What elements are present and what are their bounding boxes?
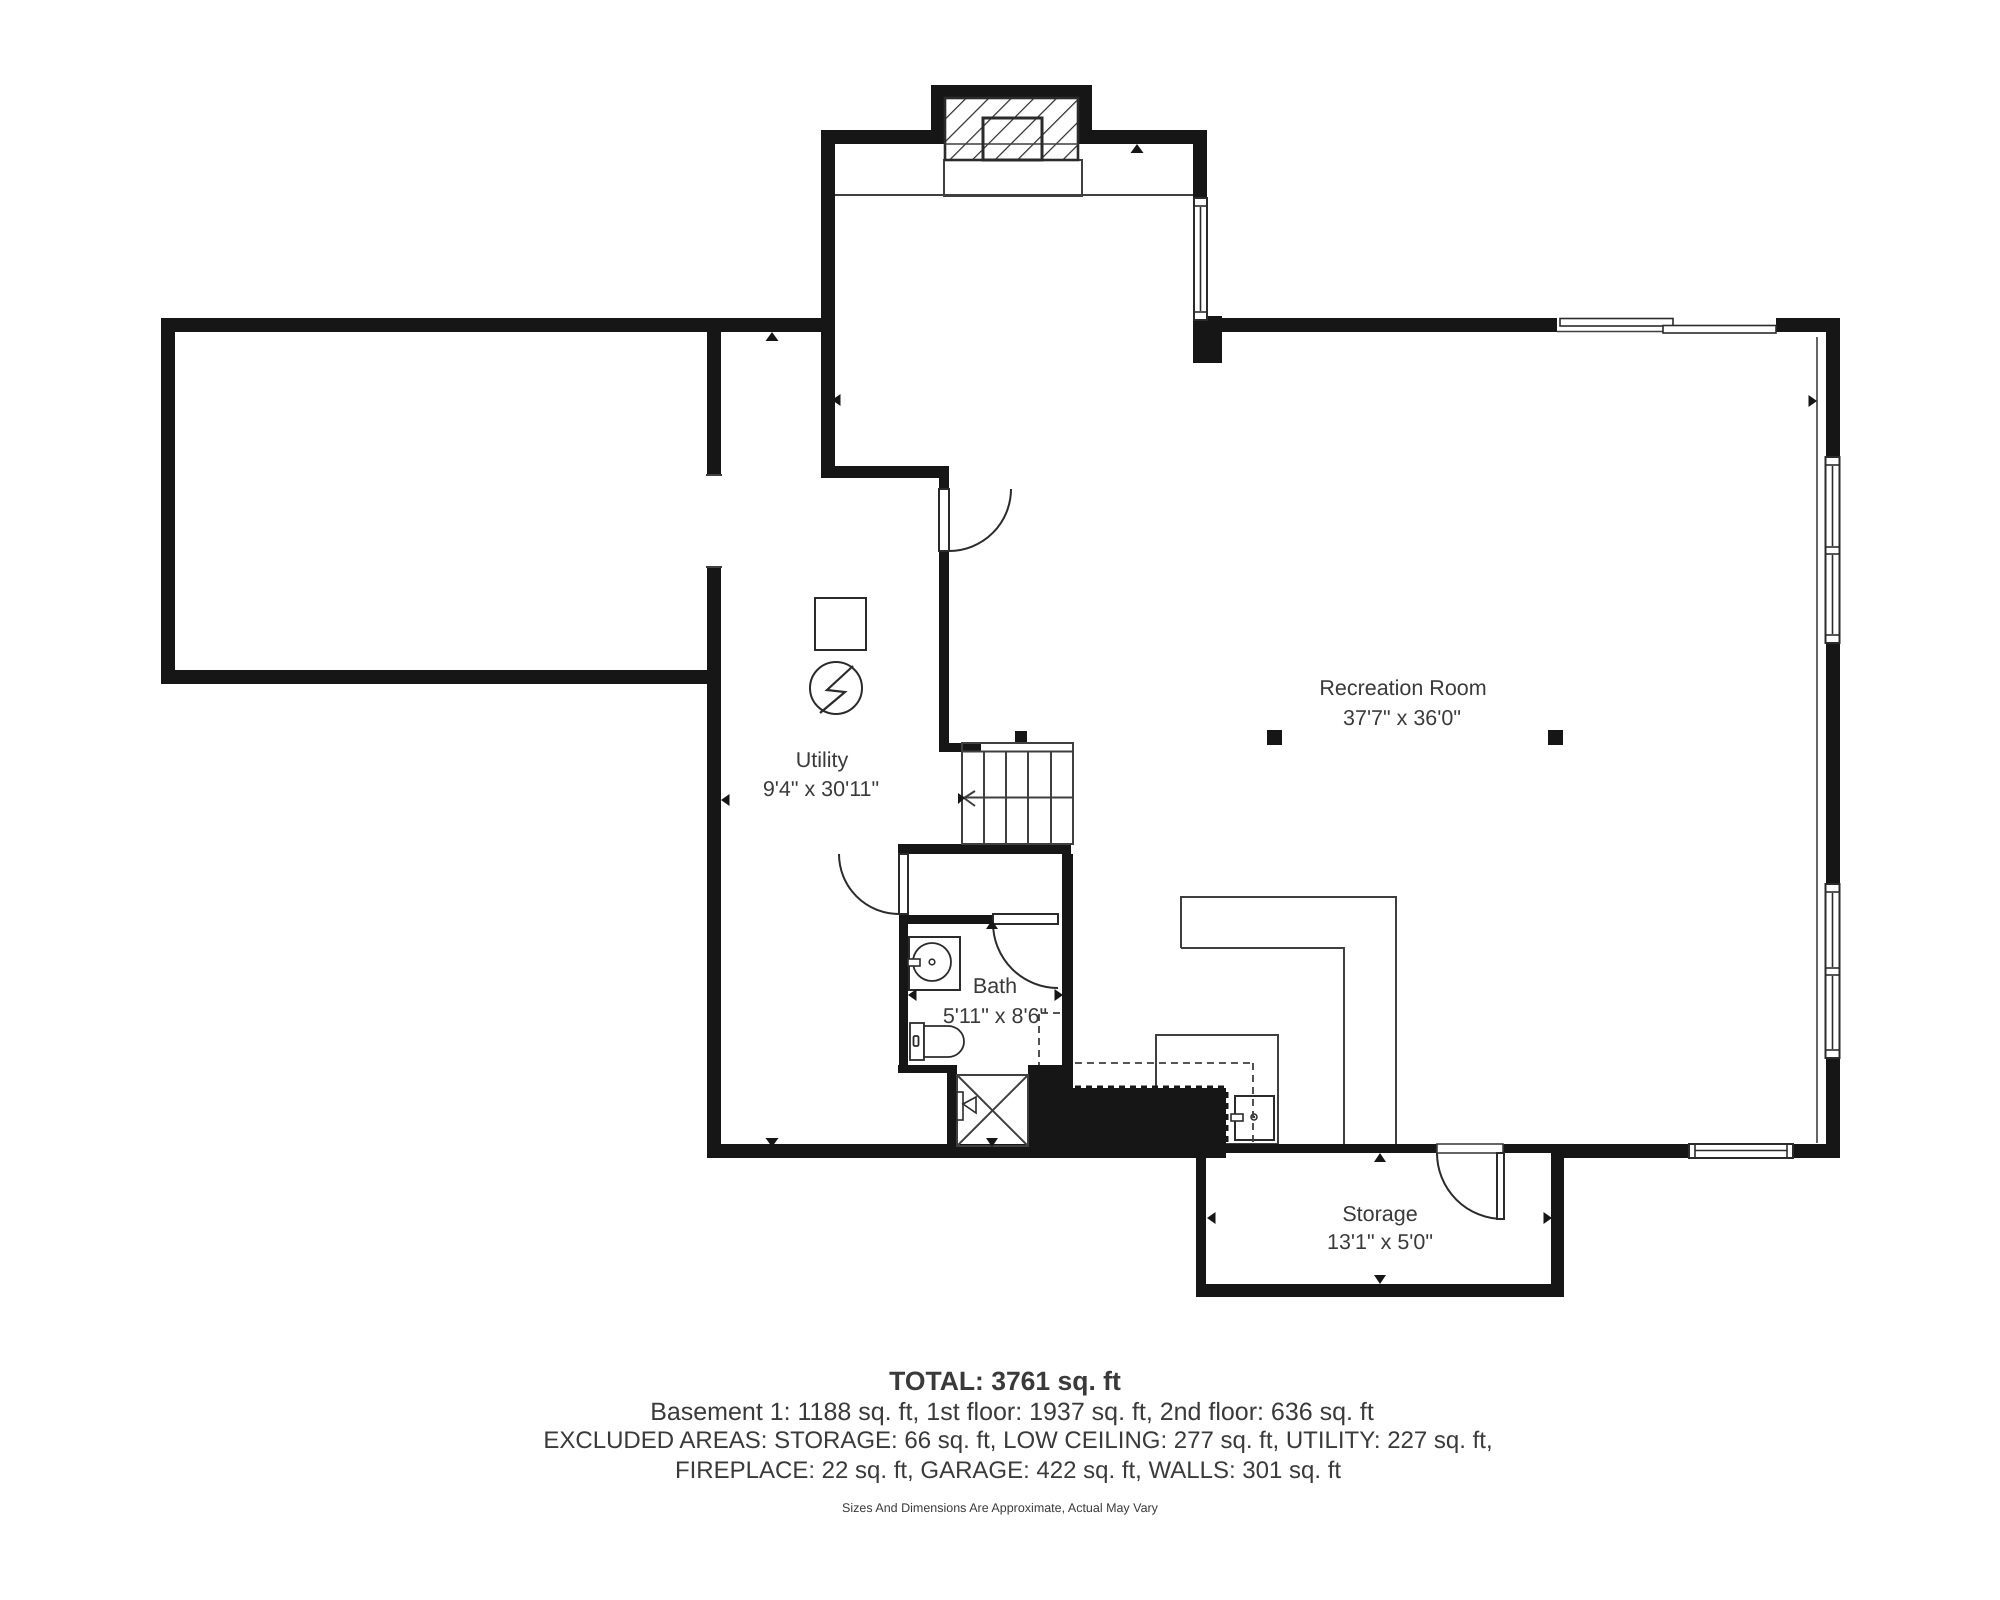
- svg-text:Sizes And Dimensions Are Appro: Sizes And Dimensions Are Approximate, Ac…: [842, 1501, 1159, 1515]
- svg-text:5'11" x 8'6": 5'11" x 8'6": [943, 1004, 1047, 1028]
- svg-text:9'4" x 30'11": 9'4" x 30'11": [763, 777, 879, 801]
- svg-text:EXCLUDED AREAS: STORAGE: 66 sq: EXCLUDED AREAS: STORAGE: 66 sq. ft, LOW …: [543, 1427, 1492, 1454]
- svg-text:37'7" x 36'0": 37'7" x 36'0": [1343, 706, 1461, 730]
- svg-text:FIREPLACE: 22 sq. ft, GARAGE:: FIREPLACE: 22 sq. ft, GARAGE: 422 sq. ft…: [675, 1457, 1341, 1484]
- svg-text:Basement 1: 1188 sq. ft, 1st f: Basement 1: 1188 sq. ft, 1st floor: 1937…: [650, 1398, 1374, 1426]
- svg-text:Storage: Storage: [1342, 1202, 1417, 1226]
- svg-text:Recreation Room: Recreation Room: [1319, 676, 1486, 700]
- svg-text:Utility: Utility: [796, 748, 849, 772]
- svg-text:13'1" x 5'0": 13'1" x 5'0": [1327, 1230, 1433, 1254]
- svg-text:TOTAL: 3761 sq. ft: TOTAL: 3761 sq. ft: [889, 1366, 1121, 1396]
- svg-text:Bath: Bath: [973, 974, 1017, 998]
